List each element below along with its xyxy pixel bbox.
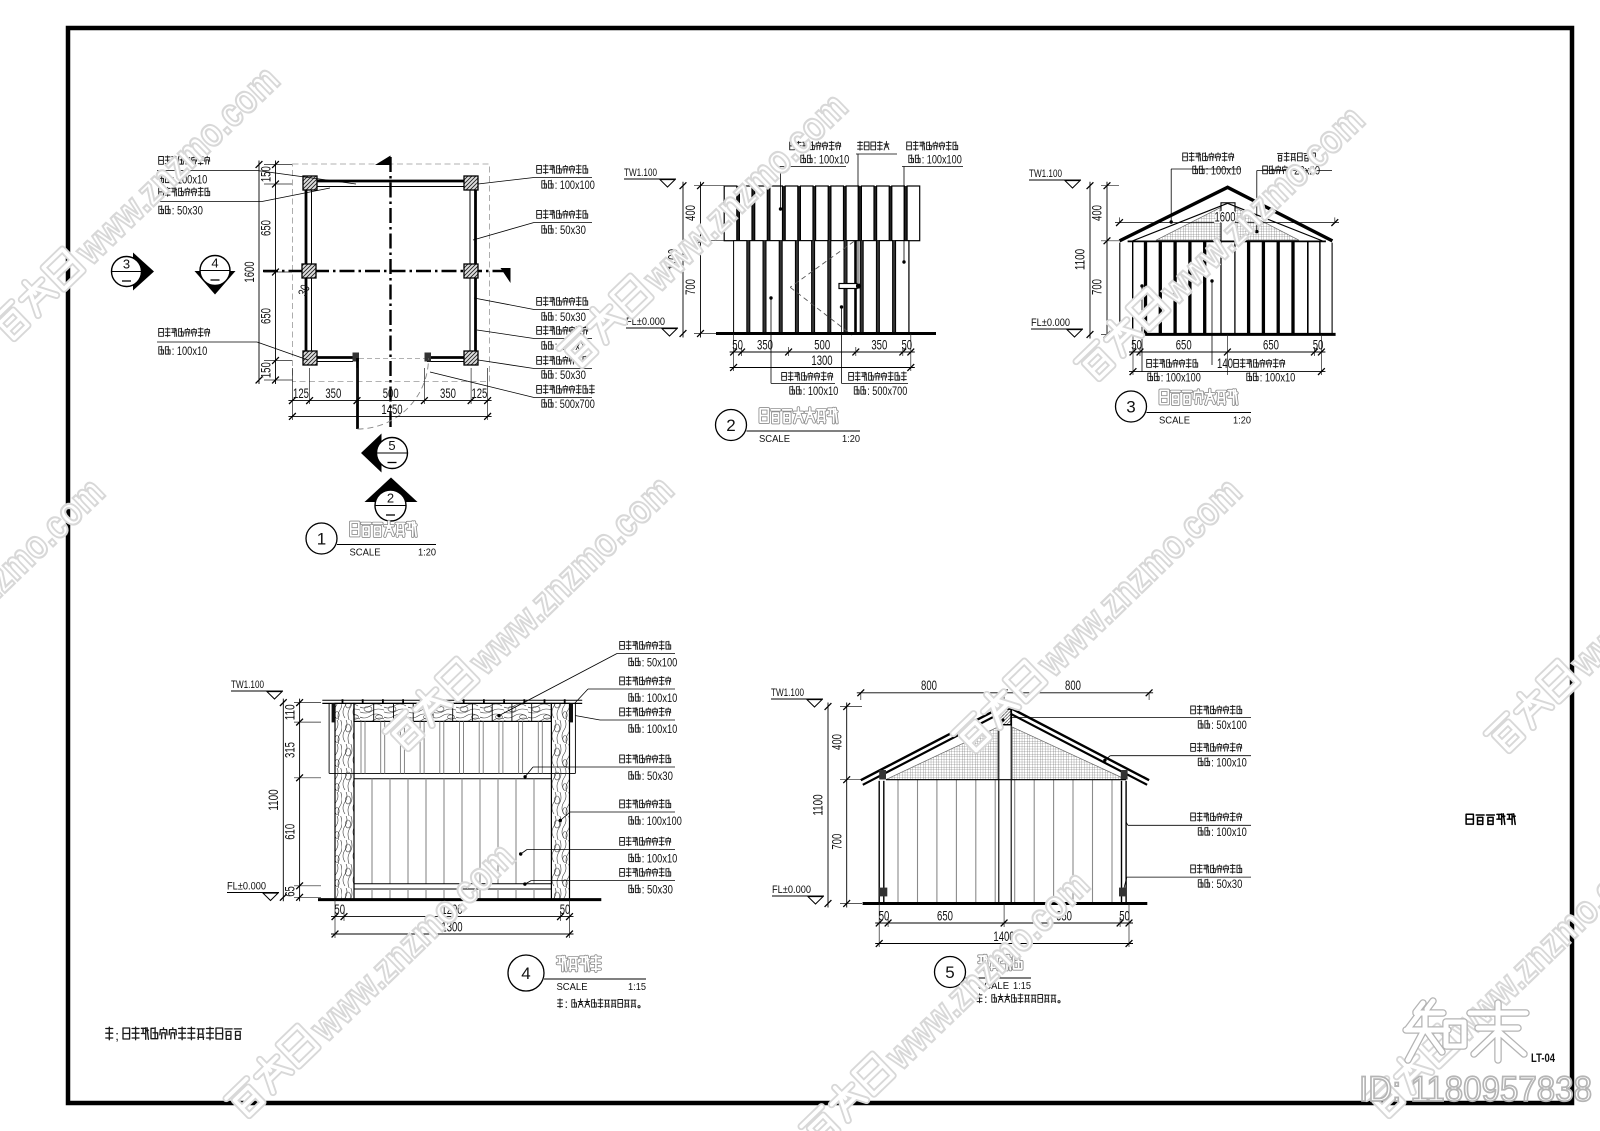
svg-text:350: 350 — [871, 337, 887, 353]
svg-text:1100: 1100 — [1072, 249, 1088, 270]
svg-text:650: 650 — [258, 308, 274, 324]
svg-text:FL±0.000: FL±0.000 — [772, 884, 811, 896]
svg-text:150: 150 — [258, 362, 274, 378]
svg-text:610: 610 — [281, 824, 297, 840]
svg-text:: 100x100: : 100x100 — [1161, 371, 1201, 385]
svg-text:800: 800 — [1065, 677, 1081, 693]
svg-text:1:15: 1:15 — [628, 981, 646, 993]
svg-text:SCALE: SCALE — [557, 981, 588, 993]
svg-text:: 100x10: : 100x10 — [642, 852, 678, 866]
svg-text:: 50x30: : 50x30 — [172, 204, 203, 218]
svg-text:1: 1 — [317, 530, 326, 549]
svg-text:: 50x100: : 50x100 — [642, 656, 678, 670]
svg-text:800: 800 — [921, 677, 937, 693]
svg-text:400: 400 — [1089, 205, 1105, 221]
svg-text:: 100x10: : 100x10 — [1211, 756, 1247, 770]
svg-text:500: 500 — [814, 337, 830, 353]
svg-text:1100: 1100 — [265, 789, 281, 810]
svg-text:FL±0.000: FL±0.000 — [1031, 317, 1070, 329]
svg-text:: 100x10: : 100x10 — [803, 384, 839, 398]
svg-text:150: 150 — [258, 166, 274, 182]
svg-text:4: 4 — [211, 256, 218, 271]
svg-text:: 100x100: : 100x100 — [642, 814, 682, 828]
svg-text:125: 125 — [293, 385, 309, 401]
svg-text:50: 50 — [560, 901, 571, 917]
svg-text:1100: 1100 — [810, 794, 826, 815]
svg-text:: 50x30: : 50x30 — [555, 223, 586, 237]
svg-text:350: 350 — [325, 385, 341, 401]
svg-text:FL±0.000: FL±0.000 — [227, 881, 266, 893]
svg-text:: 50x30: : 50x30 — [642, 769, 673, 783]
svg-text:350: 350 — [440, 385, 456, 401]
svg-text:1600: 1600 — [241, 261, 257, 282]
svg-text:: 50x100: : 50x100 — [1211, 718, 1247, 732]
svg-text:2: 2 — [387, 491, 394, 506]
svg-text:110: 110 — [281, 704, 297, 720]
svg-text:: 500x700: : 500x700 — [555, 397, 595, 411]
svg-text:650: 650 — [258, 220, 274, 236]
svg-text:700: 700 — [828, 834, 844, 850]
svg-text:1450: 1450 — [381, 401, 402, 417]
svg-text:3: 3 — [1126, 398, 1135, 417]
svg-text:50: 50 — [1313, 337, 1324, 353]
svg-text:650: 650 — [937, 908, 953, 924]
svg-text:: 50x30: : 50x30 — [555, 368, 586, 382]
svg-text:: 100x100: : 100x100 — [922, 153, 962, 167]
svg-text:: 50x30: : 50x30 — [555, 310, 586, 324]
svg-text:TW1.100: TW1.100 — [624, 167, 657, 179]
svg-text:50: 50 — [879, 908, 890, 924]
svg-text:1300: 1300 — [811, 352, 832, 368]
svg-text:50: 50 — [1131, 337, 1142, 353]
svg-text:400: 400 — [828, 734, 844, 750]
svg-text:: 100x10: : 100x10 — [1260, 371, 1296, 385]
svg-text:3: 3 — [123, 257, 130, 272]
svg-text:500: 500 — [383, 385, 399, 401]
svg-text:LT-04: LT-04 — [1531, 1053, 1555, 1065]
svg-text:SCALE: SCALE — [350, 547, 381, 559]
svg-text:700: 700 — [1089, 279, 1105, 295]
svg-text:315: 315 — [281, 742, 297, 758]
svg-text:: 100x10: : 100x10 — [814, 153, 850, 167]
svg-text:TW1.100: TW1.100 — [231, 679, 264, 691]
svg-text:;: ; — [115, 1028, 119, 1043]
svg-text:: 100x10: : 100x10 — [172, 344, 208, 358]
svg-text:: 100x10: : 100x10 — [1206, 164, 1242, 178]
svg-text:SCALE: SCALE — [759, 433, 790, 445]
svg-text:ID: 1180957838: ID: 1180957838 — [1359, 1069, 1592, 1109]
svg-text:650: 650 — [1176, 337, 1192, 353]
svg-text:140: 140 — [1217, 355, 1233, 371]
svg-text:TW1.100: TW1.100 — [1029, 168, 1062, 180]
svg-text:: 50x30: : 50x30 — [642, 883, 673, 897]
svg-text:50: 50 — [902, 337, 913, 353]
svg-text:5: 5 — [388, 438, 395, 453]
svg-text:50: 50 — [1119, 908, 1130, 924]
svg-text:: 50x30: : 50x30 — [1211, 877, 1242, 891]
svg-text:1:20: 1:20 — [1233, 415, 1251, 427]
svg-text:: 100x10: : 100x10 — [642, 691, 678, 705]
svg-text:650: 650 — [1263, 337, 1279, 353]
svg-text:1:20: 1:20 — [418, 547, 436, 559]
svg-text::: : — [565, 997, 568, 1011]
svg-text:SCALE: SCALE — [1159, 415, 1190, 427]
svg-text:: 100x10: : 100x10 — [1211, 825, 1247, 839]
svg-text:4: 4 — [521, 964, 530, 983]
svg-text:: 100x10: : 100x10 — [642, 722, 678, 736]
svg-text:50: 50 — [334, 901, 345, 917]
svg-text:1:15: 1:15 — [1013, 980, 1031, 992]
svg-text:: 100x100: : 100x100 — [555, 178, 595, 192]
svg-text:TW1.100: TW1.100 — [771, 687, 804, 699]
svg-text:50: 50 — [732, 337, 743, 353]
svg-text:1:20: 1:20 — [842, 433, 860, 445]
svg-text:125: 125 — [471, 385, 487, 401]
svg-text:2: 2 — [726, 416, 735, 435]
svg-text:65: 65 — [281, 886, 297, 897]
svg-text:: 500x700: : 500x700 — [867, 384, 907, 398]
